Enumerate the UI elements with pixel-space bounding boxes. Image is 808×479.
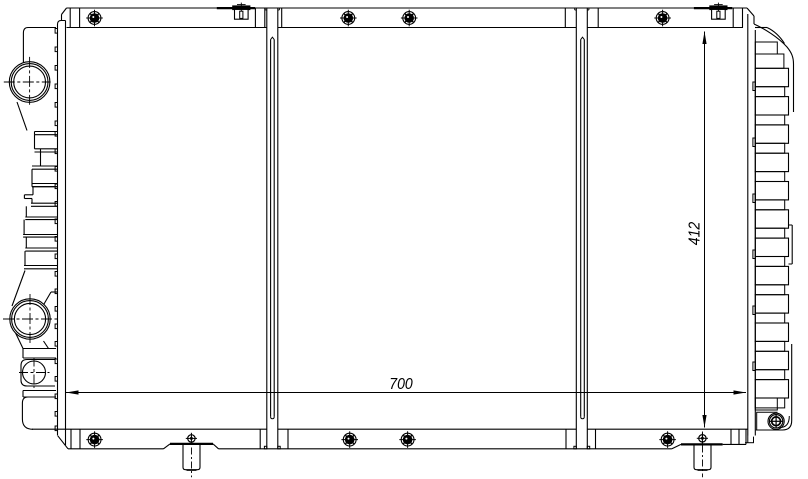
svg-text:412: 412 [687, 221, 704, 245]
svg-text:700: 700 [389, 376, 413, 393]
